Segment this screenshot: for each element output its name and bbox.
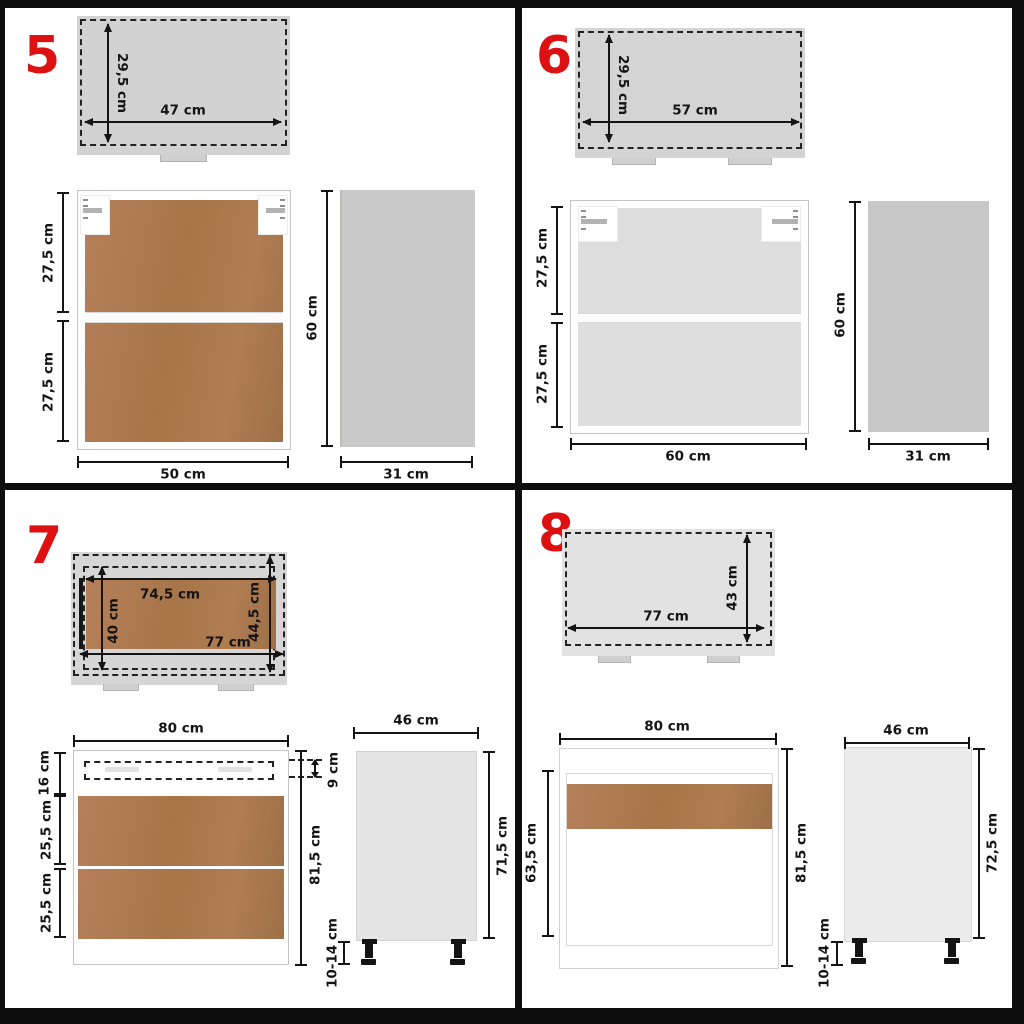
- item8-front-view: [559, 748, 779, 969]
- item7-legs-dim: [343, 941, 345, 965]
- item5-front-width-label: 50 cm: [160, 468, 206, 482]
- item6-top-width-label: 57 cm: [672, 104, 718, 118]
- item6-side-view: [868, 201, 989, 432]
- divider-vertical: [515, 0, 522, 1024]
- frame-bottom: [0, 1008, 1024, 1024]
- product-dimension-sheet: 5 29,5 cm 47 cm 27,5 cm 27,5 cm 50 cm 60…: [0, 0, 1024, 1024]
- item7-leg-left: [362, 939, 377, 965]
- item5-hanging-bracket-right: [259, 196, 287, 234]
- item6-front-width-label: 60 cm: [665, 450, 711, 464]
- item7-drawer-handle-left: [105, 767, 139, 772]
- item6-front-lower-dim: [556, 322, 558, 428]
- item6-front-upper-label: 27,5 cm: [536, 228, 550, 288]
- item5-front-upper-label: 27,5 cm: [42, 223, 56, 283]
- item7-side-height-dim: [488, 751, 490, 939]
- item8-side-width-dim: [844, 742, 970, 744]
- item8-leg-left: [852, 938, 867, 964]
- item7-side-width-dim: [353, 732, 479, 734]
- item7-front-height-label: 81,5 cm: [309, 825, 323, 885]
- item7-drawer-handle-right: [218, 767, 252, 772]
- item6-side-depth-label: 31 cm: [905, 450, 951, 464]
- item5-side-height-dim: [326, 190, 328, 447]
- item8-top-width-arrow: [568, 627, 764, 629]
- item7-top-view-edge: [79, 578, 83, 649]
- item7-shelf-upper-label: 25,5 cm: [40, 800, 54, 860]
- item8-leg-right: [945, 938, 960, 964]
- item8-front-inner-height-dim: [547, 770, 549, 937]
- item5-front-lower-dim: [62, 320, 64, 442]
- item7-legs-label: 10-14 cm: [326, 918, 340, 988]
- item5-side-depth-dim: [340, 461, 473, 463]
- item6-front-lower-label: 27,5 cm: [536, 344, 550, 404]
- item8-top-depth-label: 43 cm: [726, 565, 740, 611]
- item6-top-view-tab-left: [612, 158, 656, 165]
- item8-side-width-label: 46 cm: [883, 724, 929, 738]
- item8-legs-label: 10-14 cm: [818, 918, 832, 988]
- item8-legs-dim: [836, 941, 838, 966]
- item6-hanging-bracket-right: [762, 207, 800, 241]
- item6-hanging-bracket-left: [579, 207, 617, 241]
- item6-top-width-arrow: [583, 121, 799, 123]
- item8-top-view-tab-left: [598, 656, 631, 663]
- item6-side-height-dim: [854, 201, 856, 432]
- item5-front-width-dim: [77, 461, 289, 463]
- item8-top-depth-arrow: [746, 535, 748, 642]
- item7-drawer-inner-label: 9 cm: [327, 752, 341, 788]
- item8-side-height-dim: [978, 748, 980, 939]
- item7-side-view: [356, 751, 477, 941]
- item8-top-width-label: 77 cm: [643, 610, 689, 624]
- item7-front-width-label: 80 cm: [158, 722, 204, 736]
- item5-front-upper-dim: [62, 192, 64, 313]
- item5-top-view-outline: [80, 19, 287, 146]
- item6-front-upper-dim: [556, 206, 558, 315]
- item6-top-view-tab-right: [728, 158, 772, 165]
- item7-top-inner-width-arrow: [86, 578, 276, 580]
- item7-back-panel-lower: [78, 869, 284, 939]
- item6-front-view: [570, 200, 809, 434]
- item6-side-height-label: 60 cm: [834, 292, 848, 338]
- item6-front-width-dim: [570, 443, 807, 445]
- item8-side-height-label: 72,5 cm: [986, 813, 1000, 873]
- item7-shelf-upper-dim: [59, 795, 61, 865]
- item5-top-width-arrow: [85, 121, 281, 123]
- item5-top-view-tab: [160, 155, 207, 162]
- item5-side-view: [340, 190, 475, 447]
- item8-top-view-tab-right: [707, 656, 740, 663]
- frame-top: [0, 0, 1024, 8]
- item7-top-inner-width-label: 74,5 cm: [140, 588, 200, 602]
- item7-leg-right: [451, 939, 466, 965]
- item8-front-inner-height-label: 63,5 cm: [525, 823, 539, 883]
- item8-side-view: [844, 747, 972, 942]
- item5-side-depth-label: 31 cm: [383, 468, 429, 482]
- item6-number: 6: [536, 30, 572, 82]
- item7-top-view-tab-left: [103, 684, 139, 691]
- item7-front-width-dim: [73, 740, 289, 742]
- item8-front-width-label: 80 cm: [644, 720, 690, 734]
- item7-side-width-label: 46 cm: [393, 714, 439, 728]
- item7-back-panel-upper: [78, 796, 284, 866]
- item7-shelf-lower-label: 25,5 cm: [40, 873, 54, 933]
- item7-front-view: [73, 750, 289, 965]
- item7-top-inner-depth-label: 40 cm: [107, 598, 121, 644]
- item5-front-lower-label: 27,5 cm: [42, 352, 56, 412]
- item8-front-width-dim: [559, 738, 777, 740]
- item6-top-view-outline: [578, 31, 802, 149]
- item7-side-height-label: 71,5 cm: [496, 816, 510, 876]
- item6-top-depth-label: 29,5 cm: [615, 55, 629, 115]
- frame-left: [0, 0, 5, 1024]
- item7-top-width-label: 77 cm: [205, 636, 251, 650]
- item5-top-width-label: 47 cm: [160, 104, 206, 118]
- item5-top-depth-label: 29,5 cm: [114, 53, 128, 113]
- item7-drawer-front-dim: [59, 752, 61, 795]
- item6-top-depth-arrow: [608, 35, 610, 142]
- item7-top-view-tab-right: [218, 684, 254, 691]
- item7-top-depth-label: 44,5 cm: [248, 582, 262, 642]
- frame-right: [1012, 0, 1024, 1024]
- item5-top-depth-arrow: [107, 24, 109, 142]
- item5-number: 5: [24, 30, 60, 82]
- item7-drawer-front-label: 16 cm: [38, 750, 52, 796]
- item5-side-height-label: 60 cm: [306, 295, 320, 341]
- item7-drawer-inner-arrow: [314, 760, 316, 777]
- item7-number: 7: [26, 520, 62, 572]
- item8-front-height-label: 81,5 cm: [795, 823, 809, 883]
- divider-horizontal: [0, 483, 1024, 490]
- item7-shelf-lower-dim: [59, 868, 61, 938]
- item6-side-depth-dim: [868, 443, 989, 445]
- item7-front-height-dim: [300, 750, 302, 966]
- item5-front-view: [77, 190, 291, 450]
- item8-front-height-dim: [786, 748, 788, 967]
- item5-hanging-bracket-left: [81, 196, 109, 234]
- item6-shelf: [578, 313, 801, 323]
- item8-back-rail-wood: [567, 784, 772, 829]
- item5-shelf: [85, 312, 283, 323]
- item7-top-width-arrow: [80, 653, 283, 655]
